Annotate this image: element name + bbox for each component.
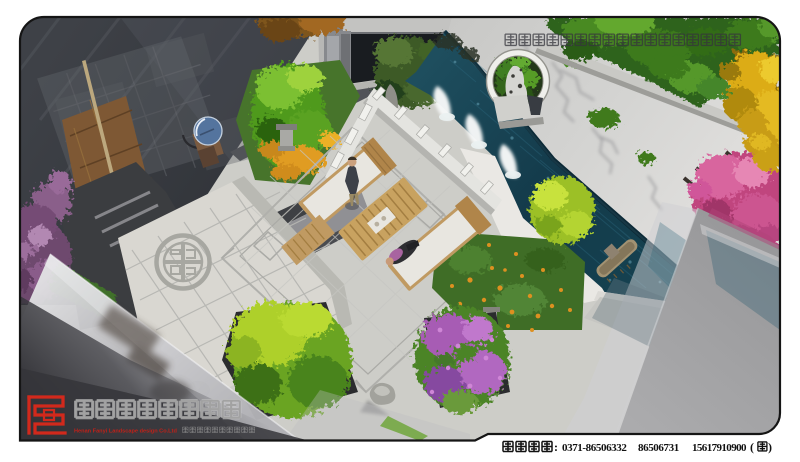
svg-text:15617910900: 15617910900: [692, 442, 747, 454]
svg-text:Henan Fanyi Landscape design C: Henan Fanyi Landscape design Co.Ltd: [74, 429, 177, 435]
svg-text:0371-86506332: 0371-86506332: [562, 442, 627, 454]
svg-text:): ): [768, 440, 772, 454]
svg-text::: :: [554, 440, 558, 454]
svg-text:86506731: 86506731: [638, 442, 679, 454]
svg-text:(: (: [750, 440, 754, 454]
